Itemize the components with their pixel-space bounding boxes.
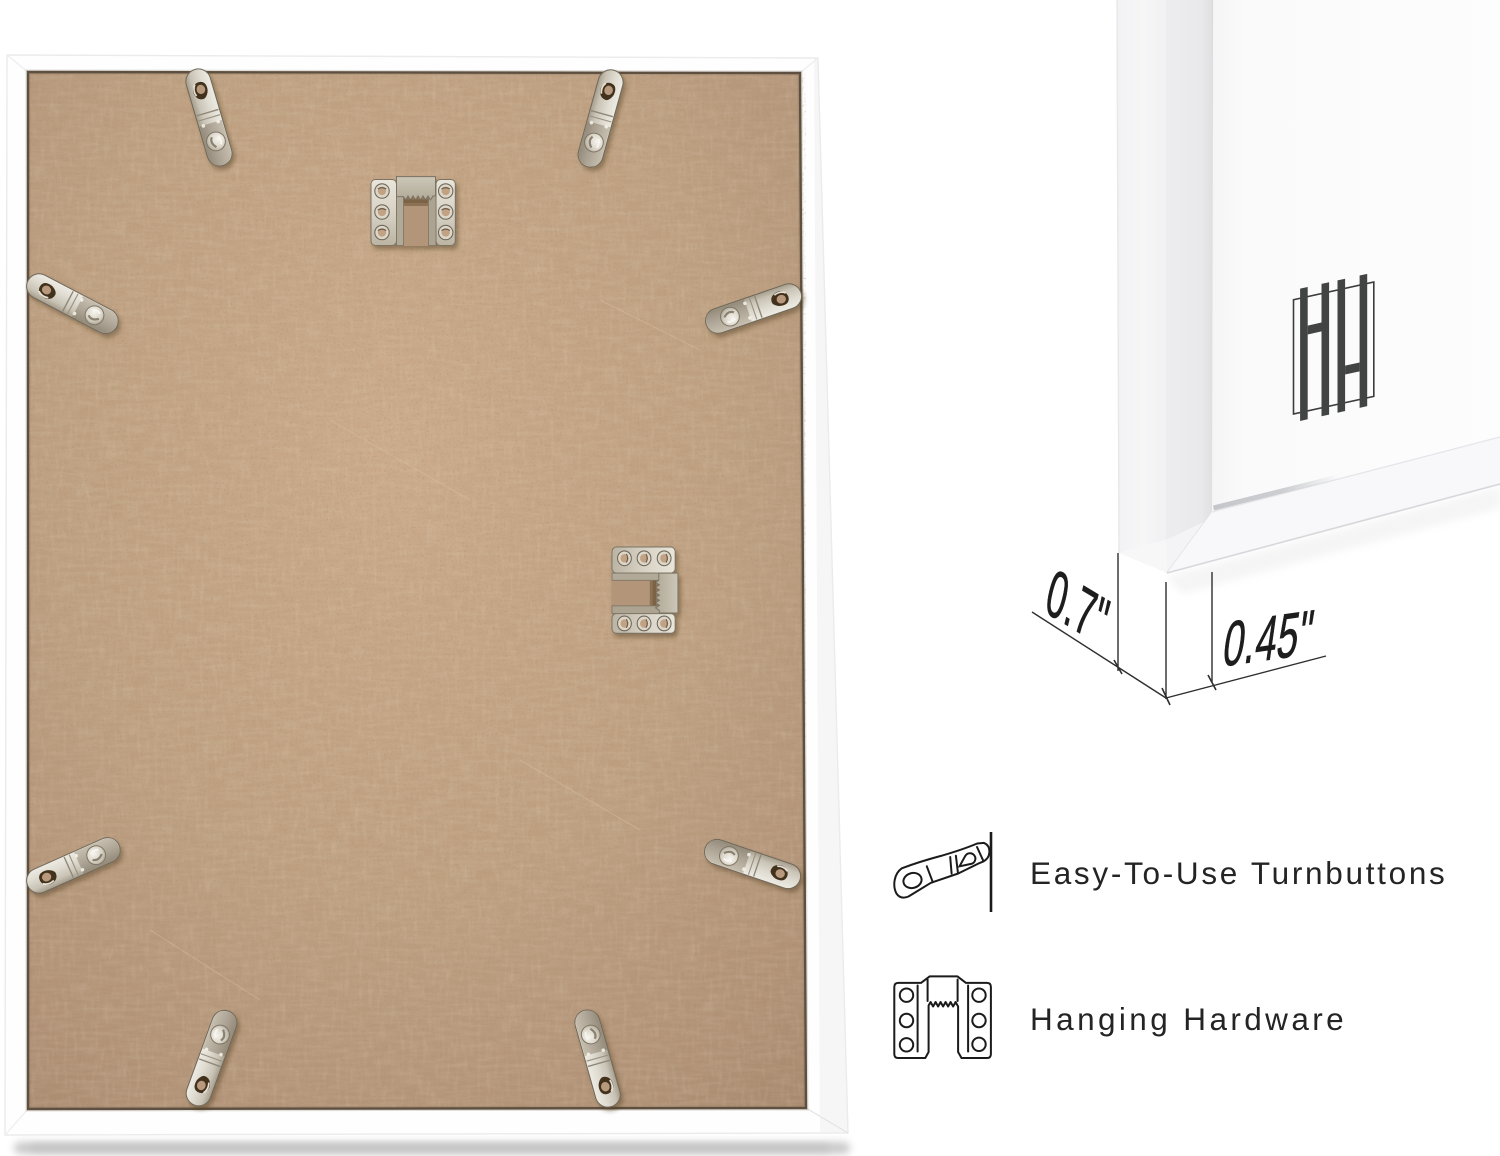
svg-text:0.45": 0.45": [1219, 597, 1318, 681]
svg-text:Easy-To-Use Turnbuttons: Easy-To-Use Turnbuttons: [1030, 855, 1448, 891]
svg-text:Hanging Hardware: Hanging Hardware: [1030, 1001, 1347, 1037]
